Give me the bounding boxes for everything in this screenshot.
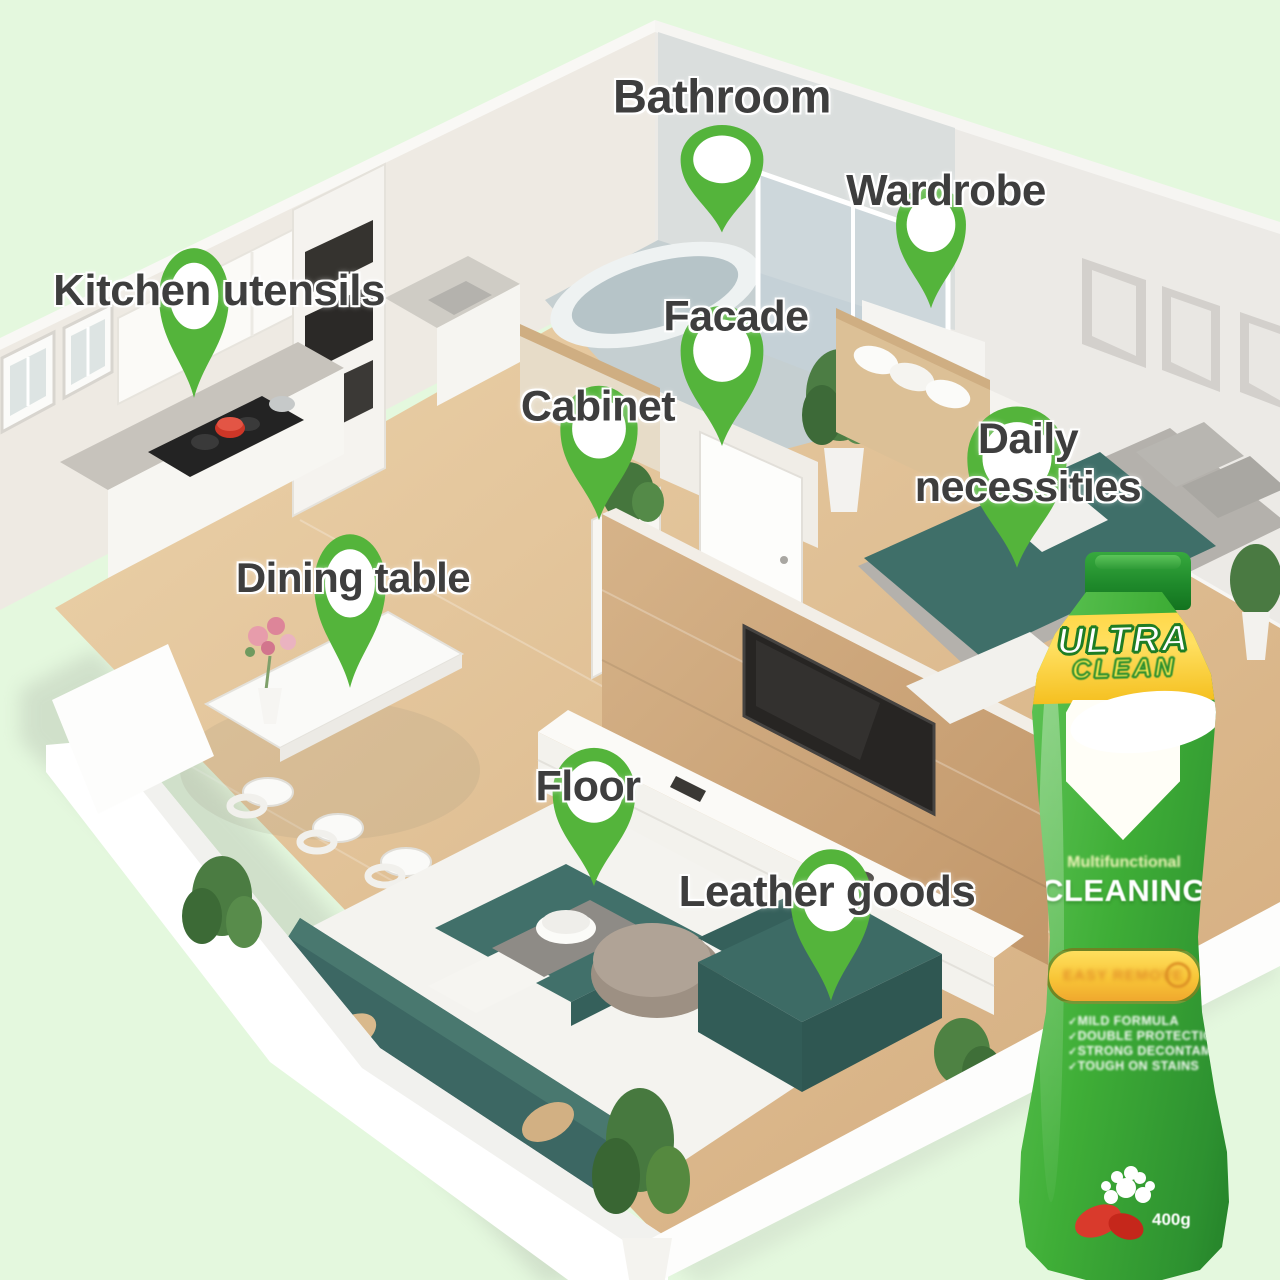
- label-dining-table: Dining table: [236, 554, 470, 602]
- brand-band: ULTRA CLEAN: [1006, 611, 1242, 705]
- location-pin-icon: [677, 122, 767, 234]
- strawberry-icon: [1106, 1210, 1147, 1243]
- bottle-highlight: [1038, 662, 1064, 1202]
- product-title: CLEANING: [1012, 873, 1236, 909]
- label-daily-necessities: Daily necessities: [873, 415, 1183, 511]
- advert-image: Bathroom Wardrobe Kitchen utensils Facad…: [0, 0, 1280, 1280]
- label-wardrobe: Wardrobe: [846, 166, 1046, 216]
- label-bathroom: Bathroom: [613, 69, 831, 124]
- feature-item: DOUBLE PROTECTION: [1068, 1029, 1265, 1044]
- label-floor: Floor: [536, 763, 641, 812]
- label-facade: Facade: [663, 293, 808, 342]
- feature-list: MILD FORMULA DOUBLE PROTECTION STRONG DE…: [1068, 1014, 1265, 1074]
- label-kitchen-utensils: Kitchen utensils: [53, 266, 385, 316]
- feature-item: MILD FORMULA: [1068, 1014, 1265, 1029]
- bottle-body: ULTRA CLEAN Multifunctional CLEANING EAS…: [1012, 592, 1236, 1280]
- flower-icon: [1116, 1178, 1136, 1198]
- brand-name-bottom: CLEAN: [1007, 650, 1242, 687]
- label-leather-goods: Leather goods: [679, 867, 976, 917]
- product-subtitle: Multifunctional: [1012, 854, 1236, 872]
- product-bottle: ULTRA CLEAN Multifunctional CLEANING EAS…: [1012, 552, 1236, 1280]
- feature-badge: EASY REMOVE: [1046, 948, 1202, 1004]
- feature-item: TOUGH ON STAINS: [1068, 1059, 1265, 1074]
- badge-icon: [1165, 962, 1191, 988]
- feature-item: STRONG DECONTAMINATION: [1068, 1044, 1265, 1059]
- net-weight: 400g: [1152, 1210, 1191, 1230]
- bottle-cap-top: [1095, 555, 1181, 569]
- label-cabinet: Cabinet: [521, 383, 675, 432]
